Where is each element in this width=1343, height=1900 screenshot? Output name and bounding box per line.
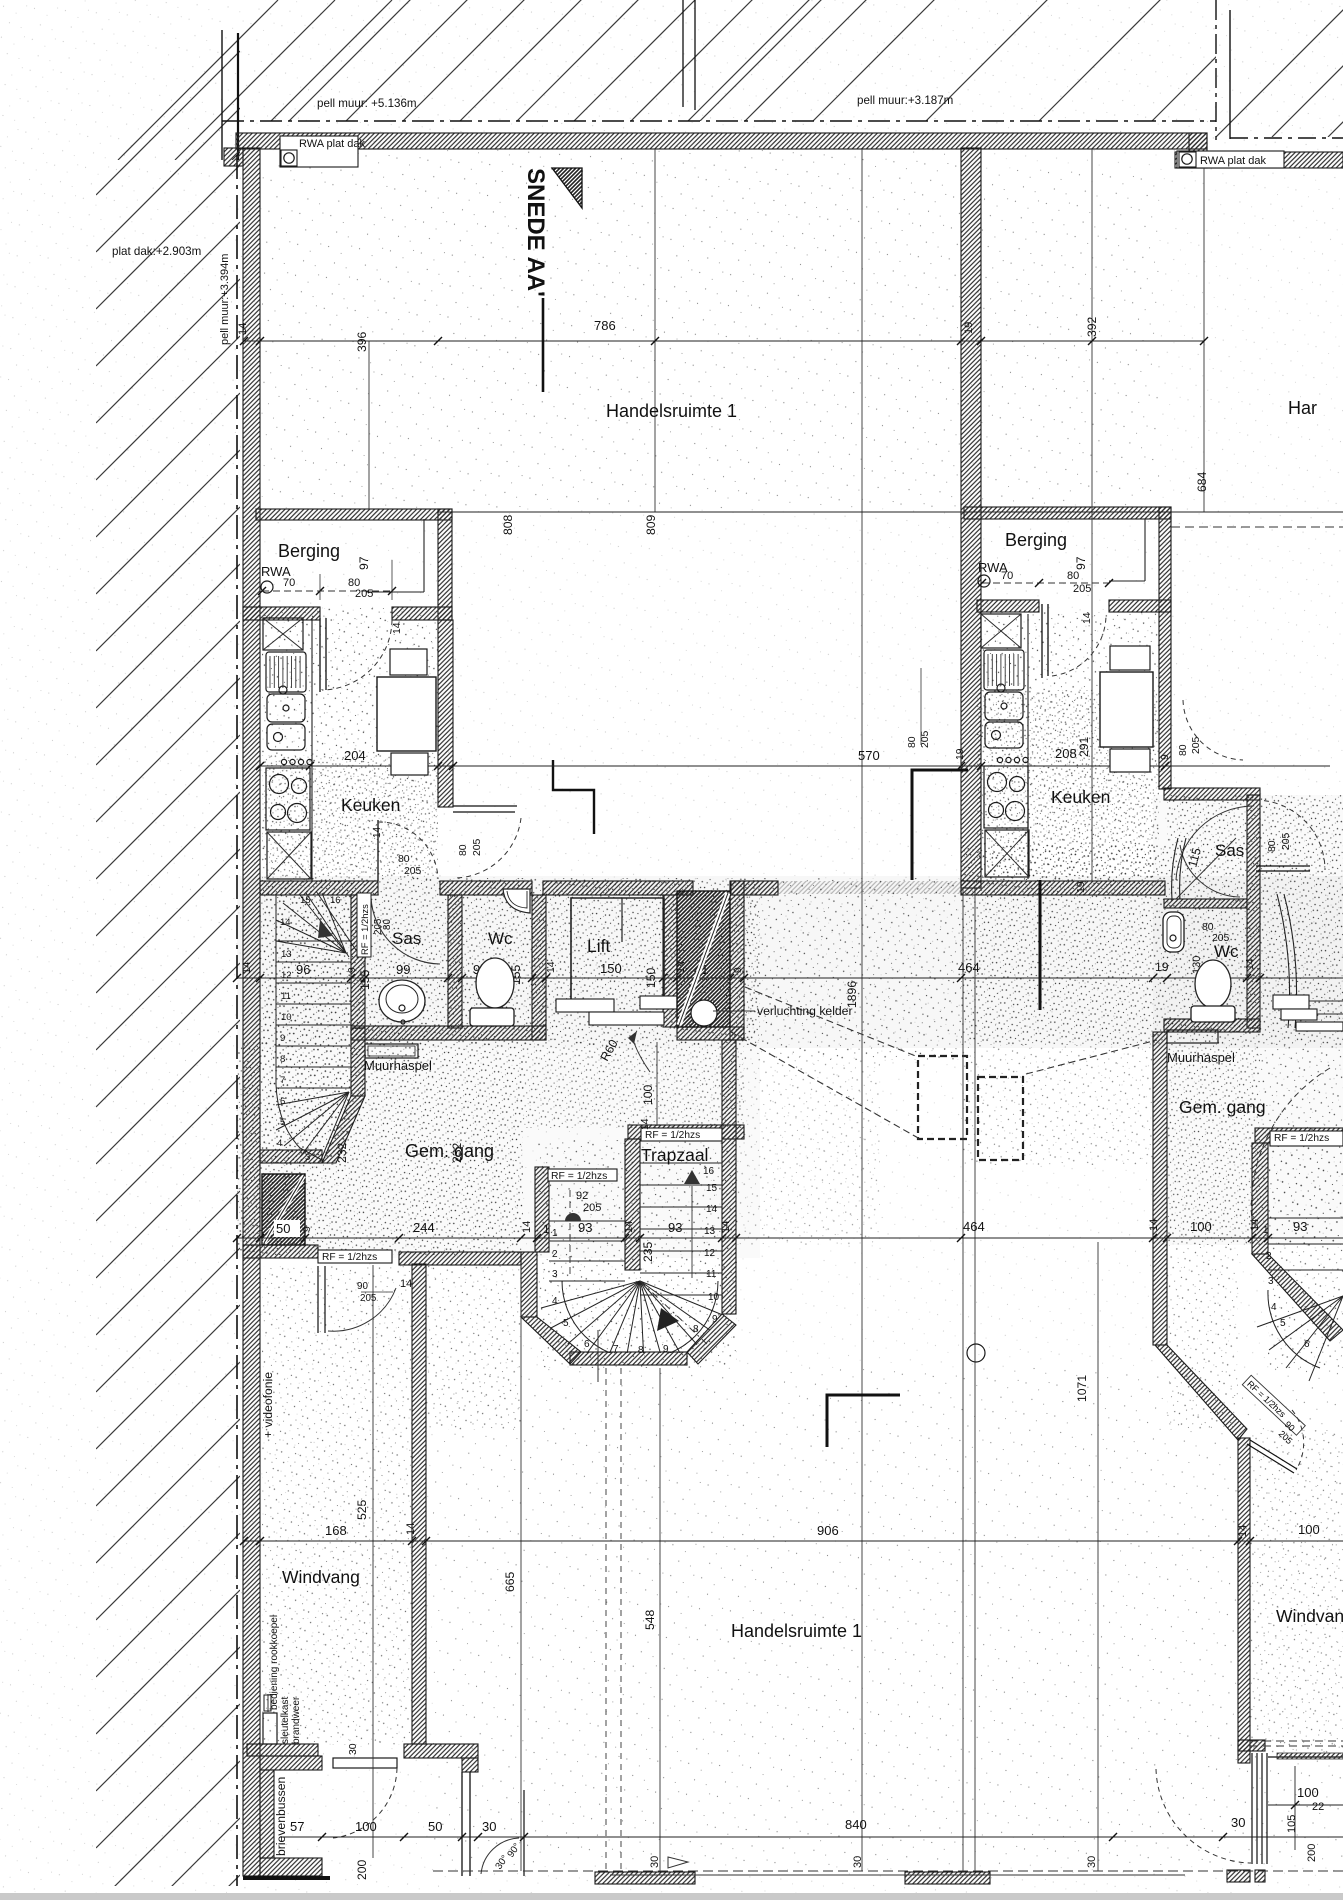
svg-text:155: 155 [358,969,372,990]
svg-text:80: 80 [458,844,469,856]
svg-text:232: 232 [335,1142,349,1163]
svg-text:205: 205 [583,1202,601,1214]
svg-text:4: 4 [277,1138,282,1149]
svg-text:80: 80 [1202,922,1214,933]
svg-text:5: 5 [280,1117,285,1128]
svg-text:19: 19 [1155,960,1169,974]
svg-text:RWA plat dak: RWA plat dak [299,138,366,150]
svg-text:14: 14 [1245,958,1256,970]
svg-text:Sas: Sas [1215,841,1244,860]
svg-text:291: 291 [1077,736,1091,757]
svg-text:205: 205 [355,588,373,600]
svg-text:14: 14 [521,1221,533,1233]
svg-text:200: 200 [355,1859,369,1880]
svg-text:3: 3 [552,1269,558,1280]
svg-text:4: 4 [552,1296,558,1307]
svg-text:Wc: Wc [1214,942,1239,961]
svg-text:665: 665 [503,1571,517,1592]
svg-text:8: 8 [638,1345,644,1356]
svg-text:9: 9 [663,1344,669,1355]
svg-text:Muurhaspel: Muurhaspel [1167,1050,1235,1065]
svg-text:6: 6 [280,1096,285,1107]
svg-text:9: 9 [712,1314,718,1325]
svg-text:22: 22 [1312,1801,1324,1813]
svg-text:96: 96 [296,962,310,977]
svg-text:30: 30 [348,1743,359,1755]
svg-text:5: 5 [1280,1318,1286,1329]
svg-text:14: 14 [1249,1219,1261,1231]
svg-text:19: 19 [963,322,975,334]
svg-text:100: 100 [1190,1219,1212,1234]
svg-text:14: 14 [623,1221,635,1233]
svg-text:205: 205 [1191,736,1202,754]
svg-text:80: 80 [907,736,918,748]
svg-text:pell muur:+3.394m: pell muur:+3.394m [219,254,231,345]
svg-text:SNEDE AA': SNEDE AA' [522,168,549,297]
svg-text:208: 208 [1055,746,1077,761]
svg-text:80: 80 [398,854,410,865]
svg-text:Gem. gang: Gem. gang [405,1141,494,1161]
svg-text:168: 168 [325,1523,347,1538]
svg-text:100: 100 [641,1084,655,1105]
svg-text:11: 11 [281,991,291,1002]
svg-text:1: 1 [552,1228,558,1239]
svg-text:plat dak:+2.903m: plat dak:+2.903m [112,245,201,258]
svg-text:30: 30 [649,1856,661,1868]
svg-text:150: 150 [600,961,622,976]
svg-text:92: 92 [576,1190,588,1202]
svg-text:70: 70 [1001,570,1013,582]
svg-text:97: 97 [357,556,371,570]
svg-text:50: 50 [428,1819,442,1834]
svg-text:30: 30 [852,1856,864,1868]
svg-text:Handelsruimte 1: Handelsruimte 1 [731,1621,862,1641]
svg-text:50: 50 [276,1221,290,1236]
svg-text:Har: Har [1288,398,1317,418]
svg-text:12: 12 [704,1248,716,1259]
svg-text:786: 786 [594,318,616,333]
svg-text:pell muur: +5.136m: pell muur: +5.136m [317,97,417,110]
svg-text:RWA plat dak: RWA plat dak [1200,155,1267,167]
svg-text:840: 840 [845,1817,867,1832]
svg-text:57: 57 [290,1819,304,1834]
svg-text:570: 570 [858,748,880,763]
svg-text:14: 14 [546,961,557,973]
svg-text:205: 205 [1281,832,1292,850]
svg-text:2: 2 [552,1249,558,1260]
svg-text:1071: 1071 [1075,1375,1089,1402]
svg-text:15: 15 [706,1183,718,1194]
svg-text:93: 93 [1293,1219,1307,1234]
svg-text:6: 6 [584,1339,590,1350]
svg-text:99: 99 [396,962,410,977]
svg-text:684: 684 [1195,471,1209,492]
svg-text:15: 15 [300,895,311,906]
svg-text:5: 5 [563,1318,569,1329]
svg-text:205: 205 [404,866,422,877]
svg-text:14: 14 [1082,612,1093,624]
svg-text:14: 14 [400,1278,412,1290]
svg-text:12: 12 [281,970,292,981]
svg-text:RF = 1/2hzs: RF = 1/2hzs [359,904,370,955]
svg-text:100: 100 [355,1819,377,1834]
svg-text:205: 205 [920,730,931,748]
svg-text:97: 97 [1074,556,1088,570]
svg-text:808: 808 [501,514,515,535]
svg-text:8: 8 [280,1054,285,1065]
svg-text:105: 105 [1286,1815,1298,1833]
svg-text:3: 3 [1268,1276,1274,1287]
svg-text:pell muur:+3.187m: pell muur:+3.187m [857,94,953,107]
svg-text:Berging: Berging [278,541,340,561]
svg-text:464: 464 [958,960,980,975]
svg-text:30: 30 [1231,1815,1245,1830]
svg-text:9: 9 [347,967,358,973]
svg-text:14: 14 [280,917,291,928]
svg-text:13: 13 [704,1226,716,1237]
svg-text:14: 14 [405,1523,417,1535]
svg-text:Berging: Berging [1005,530,1067,550]
svg-text:7: 7 [280,1075,285,1086]
svg-text:205: 205 [1073,583,1091,595]
svg-text:100: 100 [1298,1522,1320,1537]
svg-text:2: 2 [1266,1251,1272,1262]
svg-text:1: 1 [1263,1225,1269,1236]
svg-text:244: 244 [413,1220,435,1235]
svg-text:70: 70 [283,577,295,589]
svg-text:14: 14 [237,323,249,335]
svg-text:sleutelkast: sleutelkast [280,1697,291,1744]
svg-text:548: 548 [643,1609,657,1630]
svg-text:80: 80 [1178,744,1189,756]
svg-text:396: 396 [355,331,369,352]
svg-text:9: 9 [280,1033,285,1044]
svg-text:90: 90 [357,1281,368,1292]
svg-text:906: 906 [817,1523,839,1538]
svg-text:RF = 1/2hzs: RF = 1/2hzs [1274,1133,1329,1144]
svg-text:8: 8 [693,1324,699,1335]
svg-text:10: 10 [708,1292,720,1303]
svg-text:9: 9 [733,967,744,973]
svg-text:14: 14 [372,827,383,838]
svg-text:Keuken: Keuken [1051,787,1110,807]
svg-text:205: 205 [360,1293,377,1304]
svg-text:30: 30 [1086,1856,1098,1868]
svg-text:RF = 1/2hzs: RF = 1/2hzs [645,1130,700,1141]
svg-text:11: 11 [706,1269,717,1280]
svg-text:+ videofonie: + videofonie [261,1372,275,1438]
svg-text:200: 200 [1306,1844,1318,1862]
svg-text:80: 80 [1267,840,1278,852]
svg-text:brievenbussen: brievenbussen [274,1777,288,1856]
svg-text:14: 14 [640,1118,651,1130]
svg-text:Keuken: Keuken [341,795,400,815]
svg-text:Muurhaspel: Muurhaspel [364,1058,432,1073]
svg-text:392: 392 [1085,316,1099,337]
svg-text:19: 19 [955,748,966,760]
svg-text:Gem. gang: Gem. gang [1179,1097,1266,1117]
svg-text:Lift: Lift [587,936,610,956]
svg-text:Windvang: Windvang [1276,1606,1343,1626]
svg-text:16: 16 [703,1166,715,1177]
svg-text:9: 9 [1160,754,1171,760]
svg-text:4: 4 [1271,1302,1277,1313]
svg-text:30: 30 [482,1819,496,1834]
svg-text:80: 80 [1067,570,1079,582]
svg-text:235: 235 [641,1241,655,1262]
svg-text:14: 14 [1237,1525,1249,1537]
svg-text:19: 19 [1076,881,1087,893]
svg-text:Sas: Sas [392,929,421,948]
svg-text:464: 464 [963,1219,985,1234]
svg-text:brandweer: brandweer [291,1696,302,1744]
svg-text:150: 150 [644,967,658,988]
svg-text:Handelsruimte 1: Handelsruimte 1 [606,401,737,421]
svg-text:RF = 1/2hzs: RF = 1/2hzs [322,1252,377,1263]
svg-text:13: 13 [281,949,292,960]
svg-text:RF = 1/2hzs: RF = 1/2hzs [551,1171,607,1182]
svg-text:93: 93 [578,1220,592,1235]
svg-text:14: 14 [1148,1219,1160,1231]
svg-text:809: 809 [644,514,658,535]
svg-text:14: 14 [241,962,253,974]
svg-text:10: 10 [281,1012,292,1023]
svg-text:93: 93 [668,1220,682,1235]
svg-text:Windvang: Windvang [282,1567,360,1587]
svg-text:14: 14 [720,1221,732,1233]
svg-text:14: 14 [706,1204,718,1215]
svg-text:1: 1 [543,1222,550,1236]
svg-text:525: 525 [355,1499,369,1520]
svg-text:16: 16 [330,895,341,906]
svg-text:100: 100 [1297,1785,1319,1800]
svg-text:verluchting kelder: verluchting kelder [757,1004,853,1018]
svg-text:3: 3 [305,1152,310,1163]
svg-text:204: 204 [344,748,366,763]
svg-text:6: 6 [1304,1339,1310,1350]
svg-text:205: 205 [472,838,483,856]
svg-text:14: 14 [392,622,403,634]
svg-text:9: 9 [302,1226,313,1232]
svg-text:7: 7 [613,1344,619,1355]
svg-text:Wc: Wc [488,929,513,948]
svg-text:Trapzaal: Trapzaal [641,1145,708,1165]
